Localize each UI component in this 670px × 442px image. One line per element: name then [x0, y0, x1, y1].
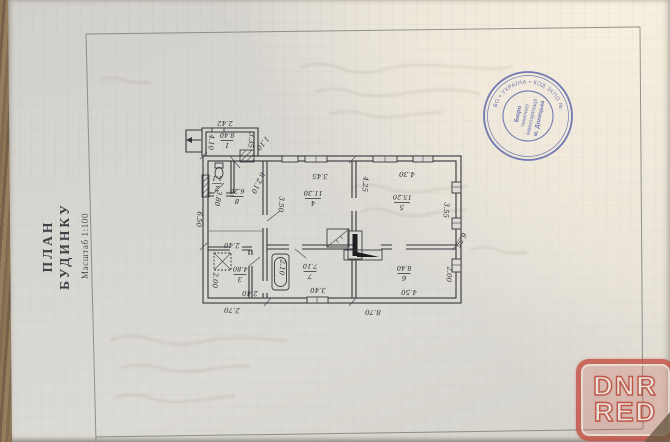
- title-block: ПЛАН БУДИНКУ Масштаб 1:100: [39, 171, 91, 321]
- dimension-label: 4.10: [206, 133, 215, 151]
- room-area: 8.40: [220, 131, 235, 139]
- dimension-label: 2.40: [241, 289, 258, 298]
- dimension-label: 2.00: [444, 265, 453, 283]
- dimension-label: 2.00: [210, 271, 219, 289]
- room-number: 1: [225, 141, 230, 149]
- watermark-line2: RED: [594, 400, 657, 426]
- room-label: 77.10: [303, 262, 318, 280]
- plan-scale: Масштаб 1:100: [80, 213, 90, 279]
- dimension-labels: 2.424.103.351.10h 2.103.806.502.402.002.…: [194, 119, 468, 316]
- dimension-label: 4.50: [401, 288, 418, 296]
- room-label: 411.30: [303, 189, 322, 207]
- bti-round-stamp: • КОМУНАЛЬНЕ ПІДПРИЄМСТВО • УКРАЇНА • КО…: [470, 60, 586, 172]
- plan-title-line2: БУДИНКУ: [57, 202, 74, 290]
- dimension-label: 8.70: [364, 308, 380, 317]
- room-number: 6: [401, 274, 406, 282]
- dimension-label: 3.45: [312, 172, 328, 180]
- dimension-label: h 2.10: [249, 171, 266, 195]
- dimension-label: 2.42: [217, 119, 234, 127]
- entrance-arrow: [186, 137, 201, 143]
- room-area: 1.1: [212, 174, 223, 182]
- dimension-label: 2.70: [223, 306, 241, 315]
- room-area: 7.10: [303, 262, 318, 270]
- dimension-label: 2.10: [277, 258, 286, 276]
- document-paper: 18.4021.186.2034.80411.30515.2077.1068.4…: [8, 0, 670, 442]
- room-number: 5: [399, 203, 404, 211]
- chimney-hatch: [202, 150, 254, 197]
- dimension-label: 1.10: [254, 135, 270, 153]
- room-area: 6.20: [230, 187, 245, 195]
- room-number: 8: [234, 197, 239, 205]
- room-area: 4.80: [233, 265, 249, 274]
- dimension-label: 6.50: [194, 211, 203, 228]
- room-label: 68.40: [397, 264, 412, 282]
- dimension-label: 3.40: [310, 286, 326, 294]
- dimension-label: 3.55: [441, 202, 450, 219]
- room-label: 515.20: [392, 193, 412, 212]
- dimension-label: 4.25: [360, 175, 369, 193]
- room-area: 8.40: [397, 264, 412, 272]
- dimension-label: 4.30: [398, 170, 415, 179]
- room-label: 34.80: [232, 265, 248, 284]
- room-number: 3: [237, 275, 242, 283]
- fraction-bar: [394, 202, 410, 203]
- room-area: 15.20: [393, 193, 412, 202]
- dimension-label: 2.40: [223, 241, 240, 250]
- dimension-label: 3.35: [246, 132, 255, 149]
- room-label: 18.40: [220, 131, 235, 149]
- room-number: 4: [311, 199, 317, 207]
- dimension-label: 3.50: [276, 196, 285, 213]
- room-number: 7: [307, 272, 312, 280]
- plan-title-line1: ПЛАН: [40, 220, 57, 273]
- room-area: 11.30: [304, 189, 323, 197]
- photo-scene: 18.4021.186.2034.80411.30515.2077.1068.4…: [0, 0, 670, 442]
